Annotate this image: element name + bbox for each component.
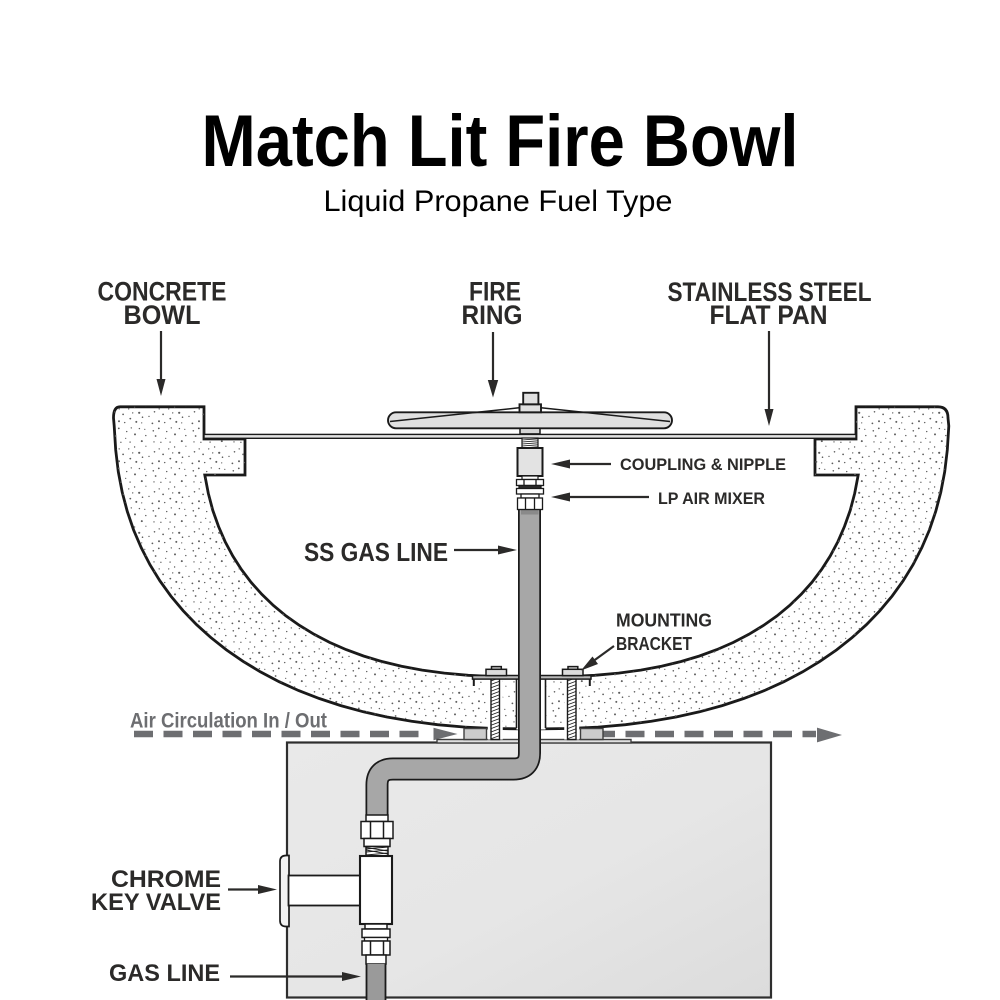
svg-text:BRACKET: BRACKET [616,634,692,654]
svg-text:BOWL: BOWL [124,300,201,330]
svg-text:KEY VALVE: KEY VALVE [91,890,221,916]
svg-text:SS GAS LINE: SS GAS LINE [304,539,448,567]
svg-text:Air Circulation In / Out: Air Circulation In / Out [130,709,327,733]
svg-text:Match Lit Fire Bowl: Match Lit Fire Bowl [202,101,799,182]
svg-text:Liquid Propane Fuel Type: Liquid Propane Fuel Type [324,185,673,218]
svg-text:MOUNTING: MOUNTING [616,611,712,631]
svg-text:COUPLING & NIPPLE: COUPLING & NIPPLE [620,455,786,474]
svg-text:FLAT PAN: FLAT PAN [710,300,828,330]
svg-text:GAS LINE: GAS LINE [109,961,220,987]
svg-text:RING: RING [462,300,523,330]
svg-text:LP AIR MIXER: LP AIR MIXER [658,489,765,508]
